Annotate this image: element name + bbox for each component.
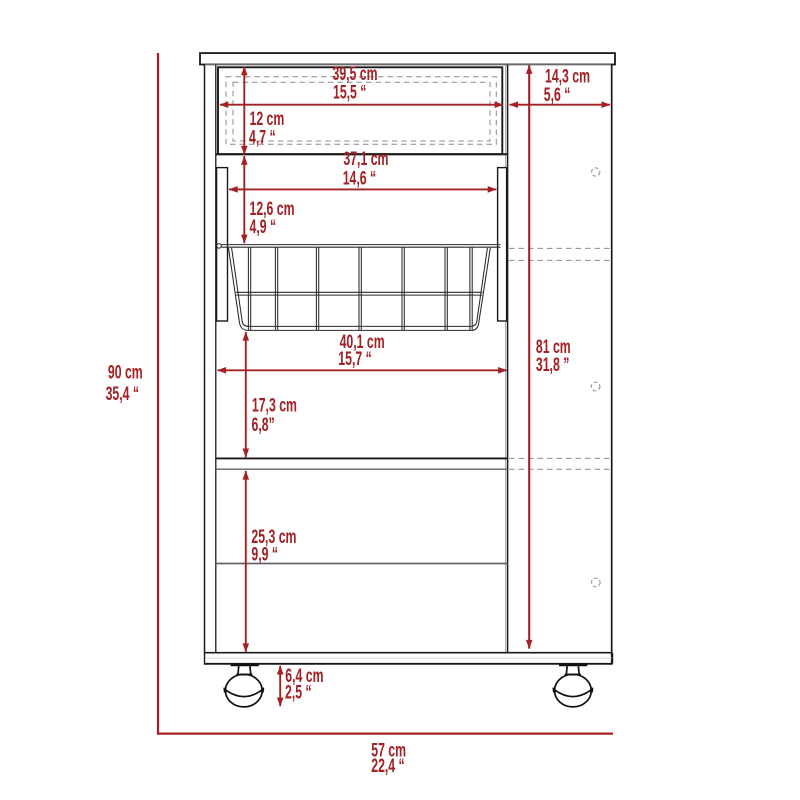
svg-text:9,9 “: 9,9 “ [251, 544, 278, 566]
svg-text:14,6 “: 14,6 “ [343, 168, 376, 190]
svg-text:4,9 “: 4,9 “ [250, 216, 277, 238]
svg-text:17,3 cm: 17,3 cm [252, 395, 297, 417]
svg-text:31,8 ”: 31,8 ” [536, 354, 569, 376]
svg-text:35,4 “: 35,4 “ [106, 383, 139, 405]
svg-text:15,7 “: 15,7 “ [338, 348, 371, 370]
svg-text:15,5 “: 15,5 “ [333, 82, 366, 104]
svg-text:22,4 “: 22,4 “ [371, 755, 404, 777]
svg-text:5,6 “: 5,6 “ [544, 84, 571, 106]
svg-text:4,7 “: 4,7 “ [249, 127, 276, 149]
svg-text:2,5 “: 2,5 “ [285, 682, 312, 704]
svg-text:90 cm: 90 cm [108, 362, 143, 384]
svg-text:6,8”: 6,8” [252, 414, 275, 436]
